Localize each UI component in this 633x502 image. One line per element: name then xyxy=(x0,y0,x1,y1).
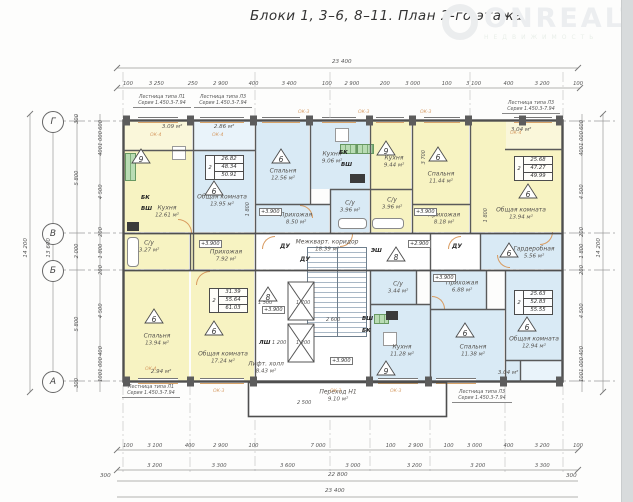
dim-label: 400 xyxy=(579,346,585,356)
dim-label: 400 xyxy=(98,346,104,356)
dim-right-overall: 14 200 xyxy=(596,238,602,258)
room-label: Общая комната17.24 м² xyxy=(198,352,248,365)
window-icon xyxy=(262,117,300,123)
room-tambour-3-04-bottom xyxy=(521,361,562,381)
apartment-number-triangle: 6 xyxy=(204,180,224,196)
dim-label: 100 xyxy=(573,81,575,87)
dim-bottom-300-left: 300 xyxy=(100,473,111,479)
dim-label: 4 500 xyxy=(98,275,104,346)
dim-label: 300 xyxy=(74,378,80,388)
window-tag: ОК-3 xyxy=(330,389,341,394)
window-icon xyxy=(138,378,178,384)
room-label: Кухня12.61 м² xyxy=(155,206,179,219)
stair-note: Лестница типа Л3Серия 1.450.3-7.94 xyxy=(452,390,512,403)
dim-interior: 3 700 xyxy=(421,150,427,164)
room-label: Спальня12.56 м² xyxy=(270,169,297,182)
svg-text:6: 6 xyxy=(463,329,468,338)
dim-label: 4 500 xyxy=(579,156,585,227)
room-label: С/у3.96 м² xyxy=(340,201,360,214)
kitchen-table-icon xyxy=(172,146,186,160)
dim-interior: 1 200 xyxy=(272,340,286,346)
svg-text:9: 9 xyxy=(384,147,389,156)
vent-shaft-icon xyxy=(350,174,365,183)
stair-note: Лестница типа Л1Серия 1.450.3-7.94 xyxy=(133,95,191,108)
svg-text:6: 6 xyxy=(507,249,512,258)
dim-interior: 2 600 xyxy=(326,317,340,323)
dim-label: 4 500 xyxy=(98,156,104,227)
axis-row-a: А xyxy=(42,371,64,393)
window-icon xyxy=(138,117,178,123)
shaft-label-lsh: ЛШ xyxy=(259,340,270,346)
window-tag: ОК-3 xyxy=(390,389,401,394)
dim-label: 400 xyxy=(98,146,104,156)
apartment-number-triangle: 6 xyxy=(144,308,164,324)
dim-left-inner: 6001 0004004 5002001 8002004 5004001 000… xyxy=(96,120,105,382)
shaft-label-bk: БК xyxy=(362,328,371,334)
room-label: Гардеробная5.56 м² xyxy=(513,247,554,260)
dim-label: 3 250 xyxy=(125,81,188,87)
dim-label: 3 300 xyxy=(186,463,251,469)
dim-label: 3 200 xyxy=(446,463,509,469)
dim-label: 3 200 xyxy=(511,443,573,449)
dim-label: 1 800 xyxy=(579,237,585,265)
shaft-label-bk: БК xyxy=(339,150,348,156)
window-tag: ОК-4 xyxy=(150,133,161,138)
dim-label: 3 000 xyxy=(323,463,382,469)
window-icon xyxy=(424,117,460,123)
dim-label: 1 000 xyxy=(579,130,585,146)
dim-bottom-300-right: 300 xyxy=(566,473,577,479)
dim-label: 3 100 xyxy=(125,443,185,449)
elevation-mark: +3.900 xyxy=(414,208,437,216)
stair-note: Лестница типа Л1Серия 1.450.3-7.94 xyxy=(122,385,180,398)
apartment-number-triangle: 6 xyxy=(499,242,519,258)
svg-text:6: 6 xyxy=(212,187,217,196)
room-label: 2.86 м² xyxy=(214,124,234,131)
shaft-label-vsh: ВШ xyxy=(341,162,352,168)
apartment-number-triangle: 9 xyxy=(131,148,151,164)
room-label: С/у3.27 м² xyxy=(139,241,159,254)
duct-label-du: ДУ xyxy=(452,243,462,250)
window-tag: ОК-4 xyxy=(145,367,156,372)
dim-label: 3 200 xyxy=(123,463,186,469)
svg-text:9: 9 xyxy=(139,155,144,164)
dim-label: 400 xyxy=(249,81,257,87)
dim-label: 400 xyxy=(579,146,585,156)
dim-bottom-22800: 22 800 xyxy=(328,472,348,478)
bathtub-icon xyxy=(338,218,367,229)
watermark-tagline: НЕДВИЖИМОСТЬ xyxy=(484,34,633,41)
dim-label: 2 900 xyxy=(388,443,444,449)
room-label: Кухня9.44 м² xyxy=(384,156,404,169)
shaft-label-bk: БК xyxy=(141,195,150,201)
window-icon xyxy=(200,378,244,384)
bathtub-icon xyxy=(127,237,139,267)
page-edge-shadow xyxy=(621,0,633,502)
dim-bottom-row2: 3 2003 3003 6003 0003 2003 2003 300 xyxy=(123,461,575,469)
stove-icon xyxy=(127,222,139,231)
axis-row-b: Б xyxy=(42,260,64,282)
room-label: 3.09 м² xyxy=(162,124,182,131)
apartment-area-table: 2 31.3955.6461.03 xyxy=(209,288,248,313)
room-label: Прихожая8.50 м² xyxy=(280,213,312,226)
dim-label: 100 xyxy=(573,443,575,449)
apartment-number-triangle: 8 xyxy=(258,286,278,302)
dim-label: 600 xyxy=(579,120,585,130)
dim-left-overall: 14 200 xyxy=(23,238,29,258)
window-icon xyxy=(322,117,356,123)
apartment-number-triangle: 9 xyxy=(376,140,396,156)
dim-label: 200 xyxy=(98,227,104,237)
apartment-number-triangle: 6 xyxy=(204,320,224,336)
room-label: Общая комната12.94 м² xyxy=(509,337,559,350)
apartment-area-table: 2 26.8248.3450.91 xyxy=(205,155,244,180)
dim-label: 3 600 xyxy=(252,463,323,469)
dim-label: 600 xyxy=(98,120,104,130)
dim-label: 5 800 xyxy=(74,270,80,378)
stair-note: Лестница типа Л3Серия 1.450.3-7.94 xyxy=(194,95,252,108)
svg-text:6: 6 xyxy=(152,315,157,324)
window-tag: ОК-4 xyxy=(510,131,521,136)
room-label: С/у3.44 м² xyxy=(388,282,408,295)
room-label: Кухня11.28 м² xyxy=(390,345,414,358)
room-label: Общая комната13.94 м² xyxy=(496,208,546,221)
apartment-number-triangle: 6 xyxy=(455,322,475,338)
room-label: Прихожая6.88 м² xyxy=(446,281,478,294)
floor-plan-page: Блоки 1, 3–6, 8–11. План 2-го этажа ONRE… xyxy=(0,0,633,502)
window-tag: ОК-3 xyxy=(298,110,309,115)
window-icon xyxy=(514,117,552,123)
shaft-label-esh: ЭШ xyxy=(371,248,382,254)
dim-label: 1 000 xyxy=(98,130,104,146)
dim-label: 4 500 xyxy=(579,275,585,346)
elevation-mark: +3.900 xyxy=(330,357,353,365)
dim-label: 3 300 xyxy=(510,463,575,469)
dim-label: 1 000 xyxy=(98,356,104,372)
dim-label: 2 900 xyxy=(193,81,249,87)
dim-label: 400 xyxy=(504,443,512,449)
staircase xyxy=(307,247,367,337)
dim-bottom-row1: 1003 1004002 9001007 0001002 9001003 000… xyxy=(123,441,575,449)
svg-text:6: 6 xyxy=(212,327,217,336)
dim-interior: 1 800 xyxy=(483,208,489,222)
room-label: Общая комната13.95 м² xyxy=(197,195,247,208)
dim-label: 300 xyxy=(74,114,80,124)
window-tag: ОК-3 xyxy=(213,389,224,394)
elevation-mark: +3.900 xyxy=(433,274,456,282)
shaft-label-vsh: ВШ xyxy=(141,206,152,212)
dim-label: 2 000 xyxy=(74,232,80,269)
svg-text:6: 6 xyxy=(279,155,284,164)
dim-label: 3 000 xyxy=(384,81,442,87)
kitchen-unit-icon xyxy=(357,144,374,154)
shaft-label-vsh: ВШ xyxy=(362,316,373,322)
svg-text:6: 6 xyxy=(525,323,530,332)
dim-label: 2 900 xyxy=(324,81,380,87)
axis-row-g: Г xyxy=(42,111,64,133)
watermark-logo-icon xyxy=(442,4,478,40)
apartment-number-triangle: 6 xyxy=(518,183,538,199)
stove-icon xyxy=(386,311,398,320)
apartment-number-triangle: 6 xyxy=(271,148,291,164)
dim-label: 200 xyxy=(579,265,585,275)
dim-bottom-overall: 23 400 xyxy=(325,488,345,494)
apartment-number-triangle: 6 xyxy=(517,316,537,332)
window-tag: ОК-3 xyxy=(420,110,431,115)
dim-label: 2 900 xyxy=(193,443,249,449)
room-label: Межкварт. коридор18.39 м² xyxy=(296,240,359,253)
window-icon xyxy=(200,117,244,123)
window-tag: ОК-4 xyxy=(212,133,223,138)
dim-label: 3 100 xyxy=(444,81,504,87)
dim-top-segments: 1003 2502502 9004003 4001002 9002003 000… xyxy=(123,79,575,87)
window-tag: ОК-3 xyxy=(358,110,369,115)
dim-label: 100 xyxy=(579,372,585,382)
dim-label: 5 800 xyxy=(74,124,80,232)
kitchen-table-icon xyxy=(335,128,349,142)
room-label: Прихожая7.92 м² xyxy=(210,250,242,263)
dim-left-13600: 13 600 xyxy=(46,238,52,258)
room-label: С/у3.96 м² xyxy=(382,198,402,211)
dim-label: 200 xyxy=(98,265,104,275)
dim-right-inner: 6001 0004004 5002001 8002004 5004001 000… xyxy=(577,120,586,382)
room-label: 3.04 м² xyxy=(498,370,518,377)
elevation-mark: +3.900 xyxy=(262,306,285,314)
dim-label: 3 200 xyxy=(511,81,573,87)
watermark-brand: ONREALT xyxy=(484,4,633,34)
elevation-mark: +3.900 xyxy=(199,240,222,248)
dim-left-major: 3005 8002 0005 800300 xyxy=(72,114,81,388)
svg-text:8: 8 xyxy=(394,253,399,262)
room-label: Спальня13.94 м² xyxy=(144,334,171,347)
room-bedroom-13-94 xyxy=(124,271,189,381)
dim-label: 3 400 xyxy=(256,81,322,87)
duct-label-du: ДУ xyxy=(280,243,290,250)
room-label: Лифт. холл8.43 м² xyxy=(248,362,284,375)
room-label: Спальня11.38 м² xyxy=(460,345,487,358)
svg-text:8: 8 xyxy=(266,293,271,302)
dim-label: 1 800 xyxy=(98,237,104,265)
window-icon xyxy=(378,378,418,384)
dim-label: 400 xyxy=(185,443,193,449)
svg-text:9: 9 xyxy=(384,367,389,376)
dim-label: 100 xyxy=(98,372,104,382)
dim-interior: 2 500 xyxy=(297,400,311,406)
window-icon xyxy=(376,117,404,123)
elevation-mark: +3.900 xyxy=(259,208,282,216)
dim-top-overall: 23 400 xyxy=(332,59,352,65)
apartment-area-table: 2 25.6847.2749.99 xyxy=(514,156,553,181)
dim-interior: 1 700 xyxy=(296,300,310,306)
svg-text:6: 6 xyxy=(436,153,441,162)
svg-text:6: 6 xyxy=(526,190,531,199)
stair-note: Лестница типа Л3Серия 1.450.3-7.94 xyxy=(502,101,560,114)
duct-label-du: ДУ xyxy=(300,256,310,263)
window-icon xyxy=(436,378,476,384)
dim-label: 3 000 xyxy=(446,443,504,449)
room-label: Спальня11.44 м² xyxy=(428,172,455,185)
dim-label: 1 000 xyxy=(579,356,585,372)
apartment-number-triangle: 6 xyxy=(428,146,448,162)
watermark: ONREALT НЕДВИЖИМОСТЬ xyxy=(442,4,633,41)
bathtub-icon xyxy=(372,218,404,229)
dim-label: 3 200 xyxy=(383,463,446,469)
apartment-number-triangle: 9 xyxy=(376,360,396,376)
apartment-area-table: 2 25.6352.8355.55 xyxy=(514,290,553,315)
elevation-mark: +2.900 xyxy=(408,240,431,248)
apartment-number-triangle: 8 xyxy=(386,246,406,262)
dim-label: 400 xyxy=(504,81,512,87)
dim-label: 7 000 xyxy=(250,443,385,449)
dim-label: 200 xyxy=(579,227,585,237)
dim-interior: 1 200 xyxy=(296,340,310,346)
